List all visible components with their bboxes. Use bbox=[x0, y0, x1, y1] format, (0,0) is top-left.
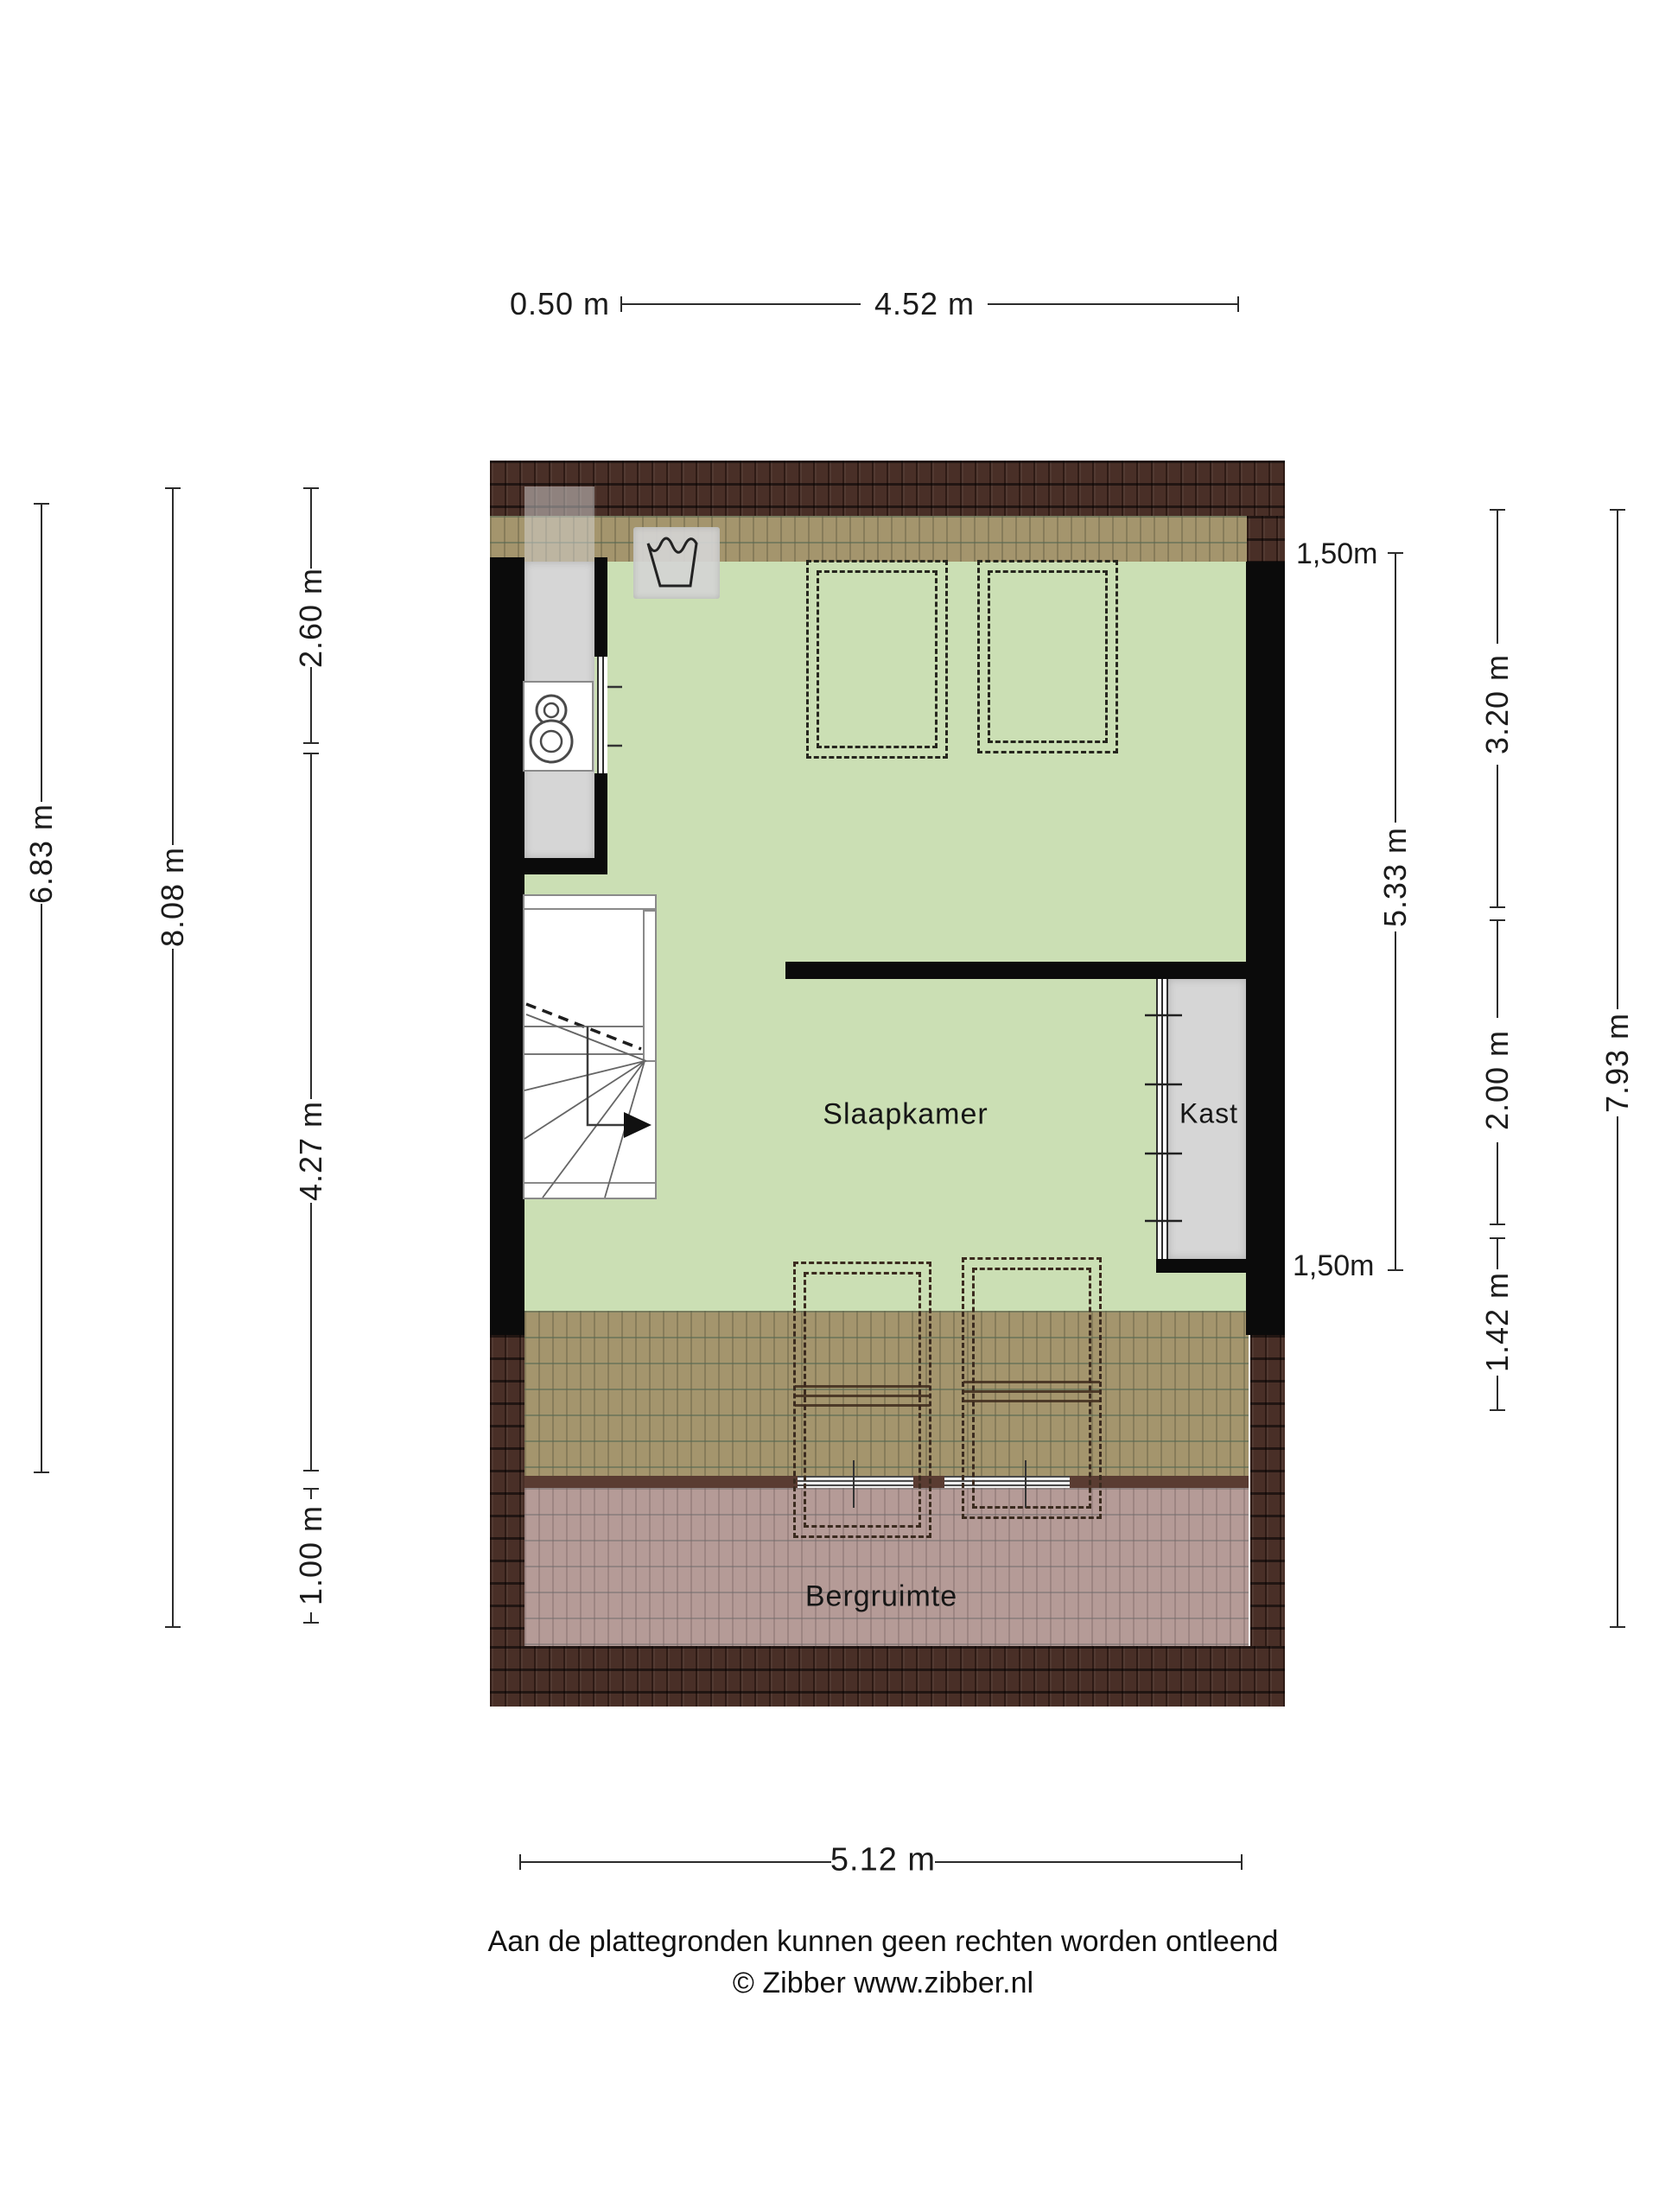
dim-793-line-b bbox=[1617, 1116, 1618, 1627]
dim-533-line-b bbox=[1395, 931, 1396, 1270]
dim-200-tick-t bbox=[1490, 919, 1505, 921]
staircase-bottom-landing bbox=[523, 1182, 657, 1199]
dim-793-label: 7.93 m bbox=[1599, 1013, 1636, 1113]
dim-top-tick-r bbox=[1237, 296, 1239, 312]
dim-320-tick-b bbox=[1490, 906, 1505, 908]
boiler-icon bbox=[523, 681, 594, 772]
dim-808-label: 8.08 m bbox=[155, 847, 191, 947]
dim-320-tick-t bbox=[1490, 509, 1505, 511]
dim-top-452: 4.52 m bbox=[874, 286, 975, 322]
dim-427-tick-b bbox=[303, 1470, 319, 1471]
dim-100-tick-b bbox=[303, 1622, 319, 1624]
dim-200-label: 2.00 m bbox=[1479, 1030, 1516, 1130]
footer-copyright: © Zibber www.zibber.nl bbox=[733, 1967, 1033, 2000]
dim-683-line-b bbox=[41, 904, 42, 1472]
dim-200-line-a bbox=[1497, 920, 1498, 1018]
dim-427-tick-t bbox=[303, 753, 319, 754]
dim-808-tick-b bbox=[165, 1626, 181, 1628]
dim-142-line-b bbox=[1497, 1376, 1498, 1410]
staircase-top-landing bbox=[523, 894, 657, 910]
dim-260-tick-t bbox=[303, 487, 319, 489]
dim-683-line-a bbox=[41, 504, 42, 802]
dim-142-label: 1.42 m bbox=[1479, 1272, 1516, 1372]
dim-top-line-1 bbox=[621, 303, 861, 305]
wall-tech-room-upper bbox=[594, 557, 607, 657]
dim-150-top-label: 1,50m bbox=[1296, 537, 1378, 571]
roof-edge-bottom-left bbox=[490, 1335, 524, 1646]
dim-793-tick-t bbox=[1610, 509, 1625, 511]
skylight-right-inner bbox=[988, 570, 1108, 743]
wall-left bbox=[490, 557, 524, 1335]
dim-808-line-b bbox=[172, 949, 174, 1627]
dim-260-line-a bbox=[310, 488, 312, 569]
dim-320-line-b bbox=[1497, 765, 1498, 907]
dim-100-tick-t bbox=[303, 1488, 319, 1490]
bed-right-headboard-lines bbox=[963, 1381, 1100, 1403]
dim-100-label: 1.00 m bbox=[293, 1505, 329, 1605]
washing-machine-icon bbox=[633, 527, 720, 599]
dim-683-tick-b bbox=[34, 1471, 49, 1473]
dim-427-line-b bbox=[310, 1203, 312, 1471]
tech-room-door bbox=[597, 657, 607, 773]
dim-142-tick-b bbox=[1490, 1409, 1505, 1411]
staircase-railing bbox=[643, 910, 657, 1062]
dim-top-050: 0.50 m bbox=[510, 286, 610, 322]
skylight-left-inner bbox=[817, 570, 938, 748]
dim-320-line-a bbox=[1497, 510, 1498, 644]
wall-closet-bottom-stub bbox=[1156, 1257, 1246, 1273]
dim-808-tick-t bbox=[165, 487, 181, 489]
dim-683-tick-t bbox=[34, 503, 49, 505]
dim-427-label: 4.27 m bbox=[293, 1101, 329, 1201]
dim-793-tick-b bbox=[1610, 1626, 1625, 1628]
dim-512-line-b bbox=[935, 1861, 1242, 1863]
dim-533-tick-b bbox=[1388, 1269, 1403, 1271]
tech-room-under-roof-ghost bbox=[524, 486, 594, 562]
dim-142-line-a bbox=[1497, 1238, 1498, 1269]
room-label-kast: Kast bbox=[1179, 1098, 1238, 1130]
dim-260-tick-b bbox=[303, 742, 319, 744]
dim-427-line-a bbox=[310, 753, 312, 1099]
wall-tech-room-bottom bbox=[490, 858, 607, 874]
dim-683-label: 6.83 m bbox=[23, 804, 60, 904]
dim-260-line-b bbox=[310, 667, 312, 743]
room-label-bergruimte: Bergruimte bbox=[805, 1580, 957, 1614]
dim-533-tick-t bbox=[1388, 552, 1403, 554]
dim-200-tick-b bbox=[1490, 1224, 1505, 1225]
dim-512-line-a bbox=[520, 1861, 831, 1863]
dim-533-line-a bbox=[1395, 553, 1396, 823]
roof-ridge-top bbox=[490, 461, 1285, 516]
dim-533-label: 5.33 m bbox=[1377, 827, 1414, 927]
footer-disclaimer: Aan de plattegronden kunnen geen rechten… bbox=[488, 1925, 1279, 1959]
dim-512-tick-r bbox=[1241, 1854, 1243, 1870]
dim-260-label: 2.60 m bbox=[293, 568, 329, 668]
dim-150-bottom-label: 1,50m bbox=[1293, 1249, 1375, 1283]
dim-793-line-a bbox=[1617, 510, 1618, 1009]
staircase bbox=[523, 894, 657, 1199]
room-label-slaapkamer: Slaapkamer bbox=[823, 1098, 988, 1132]
dim-808-line-a bbox=[172, 488, 174, 845]
dim-512-label: 5.12 m bbox=[830, 1842, 936, 1879]
roof-slope-top-overlay bbox=[490, 516, 1247, 562]
floorplan-page: Slaapkamer Kast Bergruimte 0.50 m 4.52 m… bbox=[0, 0, 1659, 2212]
wall-right bbox=[1246, 562, 1285, 1335]
dim-top-line-2 bbox=[988, 303, 1238, 305]
roof-eave-bottom bbox=[490, 1646, 1285, 1707]
dim-100-line-a bbox=[310, 1489, 312, 1499]
dim-512-tick-l bbox=[519, 1854, 521, 1870]
dim-142-tick-t bbox=[1490, 1237, 1505, 1239]
dim-320-label: 3.20 m bbox=[1479, 654, 1516, 754]
wall-interior-bedroom bbox=[785, 962, 1246, 979]
roof-edge-bottom-right bbox=[1250, 1335, 1285, 1646]
dim-200-line-b bbox=[1497, 1142, 1498, 1224]
closet-sliding-door bbox=[1156, 979, 1168, 1259]
dim-top-tick-l bbox=[620, 296, 622, 312]
bed-left-headboard-lines bbox=[795, 1385, 930, 1408]
